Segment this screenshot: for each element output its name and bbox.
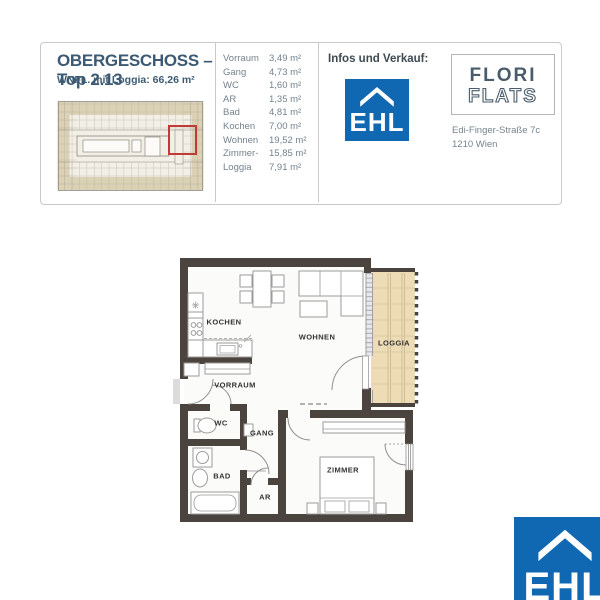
room-list-row: Zimmer-15,85 m²	[223, 148, 315, 162]
header-divider	[215, 43, 216, 202]
vorraum-cabinet	[184, 363, 199, 376]
nightstand	[307, 503, 318, 514]
room-list-row: WC1,60 m²	[223, 80, 315, 94]
bad-sink	[193, 469, 208, 487]
bathtub	[191, 492, 239, 514]
floor-plan-drawing	[168, 246, 424, 528]
room-list-row: AR1,35 m²	[223, 94, 315, 108]
room-area: 15,85 m²	[269, 148, 307, 159]
ehl-wordmark: EHL	[345, 107, 409, 138]
loggia-deck	[371, 268, 417, 407]
page: OBERGESCHOSS – Top 2.13 WNFL. mit Loggia…	[0, 0, 600, 600]
page-subtitle: WNFL. mit Loggia: 66,26 m²	[57, 74, 195, 86]
flats-text: FLATS	[468, 86, 538, 107]
ehl-logo: EHL	[345, 79, 409, 141]
room-name: Loggia	[223, 162, 269, 173]
room-area: 7,00 m²	[269, 121, 301, 132]
room-area: 1,35 m²	[269, 94, 301, 105]
room-area: 1,60 m²	[269, 80, 301, 91]
room-label-kochen: KOCHEN	[207, 318, 242, 327]
room-label-vorraum: VORRAUM	[214, 381, 256, 390]
contact-label: Infos und Verkauf:	[328, 53, 428, 65]
coffee-table	[300, 301, 327, 317]
toilet	[194, 418, 216, 433]
header-card: OBERGESCHOSS – Top 2.13 WNFL. mit Loggia…	[40, 42, 562, 205]
room-name: Bad	[223, 107, 269, 118]
building-overview-plan	[57, 100, 204, 192]
room-label-wohnen: WOHNEN	[299, 333, 336, 342]
address-line2: 1210 Wien	[452, 138, 540, 152]
room-label-gang: GANG	[250, 429, 274, 438]
room-name: Vorraum	[223, 53, 269, 64]
room-label-bad: BAD	[213, 472, 230, 481]
room-area: 4,73 m²	[269, 67, 301, 78]
flori-flats-logo: FLORI FLATS	[451, 54, 555, 115]
washing-machine	[193, 448, 212, 467]
room-label-zimmer: ZIMMER	[327, 466, 359, 475]
room-name: AR	[223, 94, 269, 105]
room-area: 7,91 m²	[269, 162, 301, 173]
room-name: WC	[223, 80, 269, 91]
room-name: Kochen	[223, 121, 269, 132]
address: Edi-Finger-Straße 7c 1210 Wien	[452, 124, 540, 153]
room-list-row: Vorraum3,49 m²	[223, 53, 315, 67]
room-list-row: Loggia7,91 m²	[223, 162, 315, 176]
room-label-loggia: LOGGIA	[378, 339, 410, 348]
nightstand	[376, 503, 386, 514]
loggia-door-leaf	[363, 356, 369, 389]
header-divider	[318, 43, 319, 202]
room-label-wc: WC	[214, 419, 227, 428]
room-list-row: Wohnen19,52 m²	[223, 135, 315, 149]
zimmer-window	[406, 444, 413, 470]
house-roof-icon	[349, 84, 405, 108]
room-name: Zimmer-	[223, 148, 269, 159]
room-list-row: Bad4,81 m²	[223, 107, 315, 121]
dining-table	[253, 271, 271, 307]
room-area: 19,52 m²	[269, 135, 307, 146]
room-list-row: Gang4,73 m²	[223, 67, 315, 81]
room-name: Wohnen	[223, 135, 269, 146]
room-list-row: Kochen7,00 m²	[223, 121, 315, 135]
room-name: Gang	[223, 67, 269, 78]
ehl-wordmark: EHL	[514, 565, 600, 600]
room-area-list: Vorraum3,49 m² Gang4,73 m² WC1,60 m² AR1…	[223, 53, 315, 175]
address-line1: Edi-Finger-Straße 7c	[452, 124, 540, 138]
room-label-ar: AR	[259, 493, 271, 502]
house-roof-icon	[520, 525, 600, 563]
room-area: 4,81 m²	[269, 107, 301, 118]
zimmer-wardrobe	[323, 422, 405, 433]
footer-ehl-logo: EHL	[514, 517, 600, 600]
room-area: 3,49 m²	[269, 53, 301, 64]
vorraum-wardrobe	[205, 363, 250, 374]
flori-text: FLORI	[470, 65, 537, 86]
